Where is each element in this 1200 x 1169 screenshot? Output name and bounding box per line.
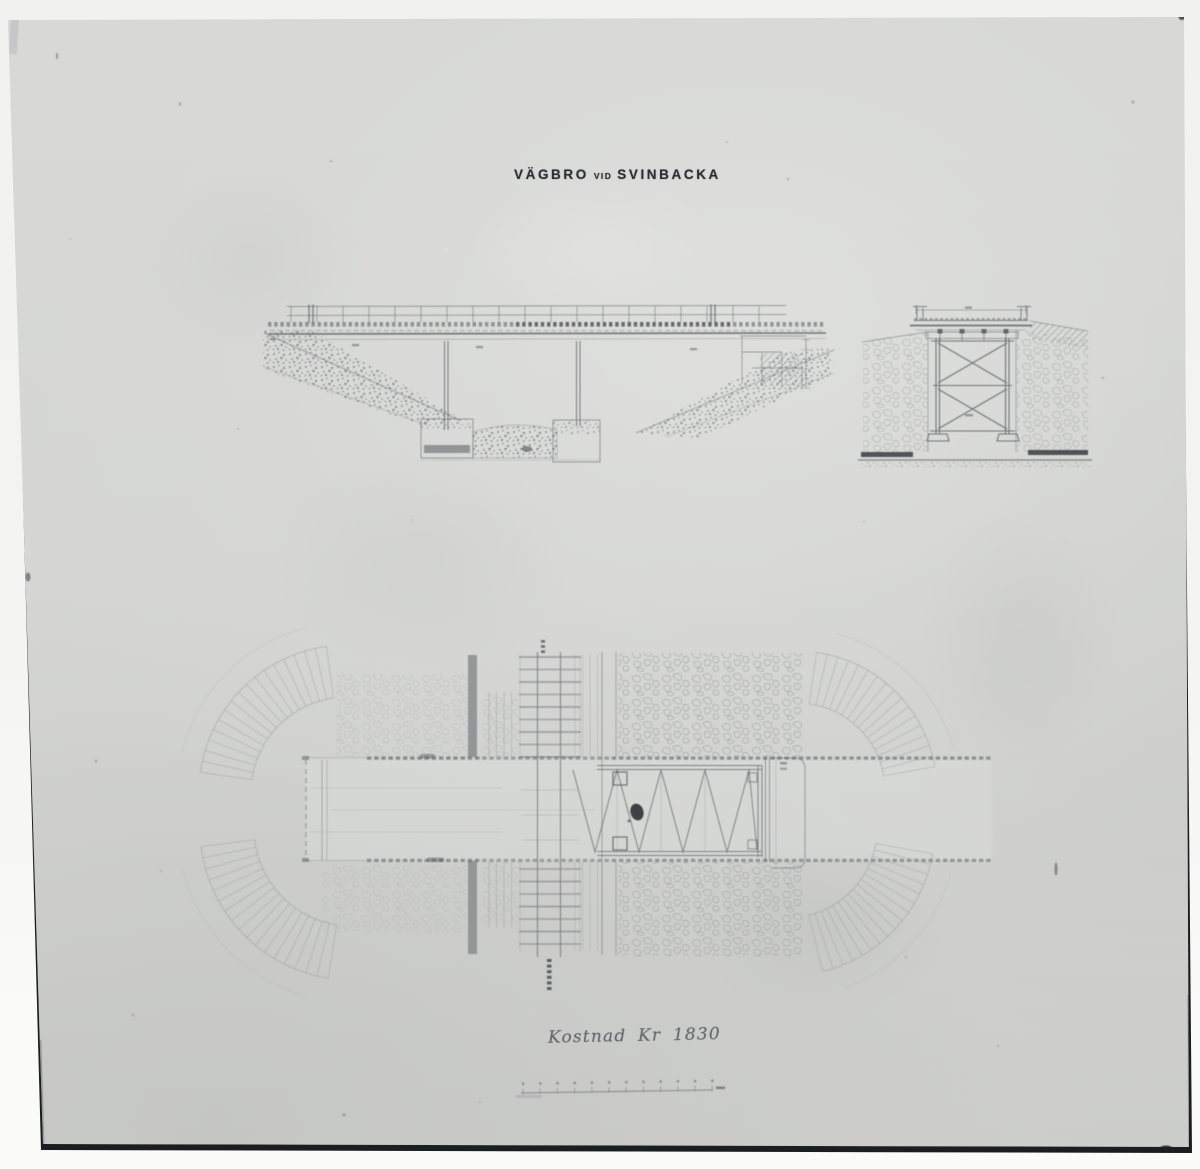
right-embankment: [638, 348, 833, 438]
handwritten-inscription: Kostnad Kr 1830: [548, 1024, 721, 1048]
paper-specks: [9, 14, 1190, 1151]
photo-scan: VÄGBROVIDSVINBACKA Kostnad Kr 1830: [0, 0, 1200, 1169]
drawing-title: VÄGBROVIDSVINBACKA: [514, 167, 721, 182]
title-word: SVINBACKA: [617, 167, 721, 182]
elevation-view: [263, 305, 834, 463]
abutment-wall-edge: [468, 655, 477, 757]
plan-view: [182, 628, 992, 996]
photo-print: VÄGBROVIDSVINBACKA Kostnad Kr 1830: [0, 0, 1200, 1169]
cross-section-view: [858, 305, 1092, 467]
scale-bar: [516, 1080, 725, 1098]
masonry-left: [863, 332, 928, 452]
title-word: VÄGBRO: [514, 167, 589, 182]
left-embankment: [263, 331, 462, 426]
abutment-wall-edge: [468, 861, 477, 954]
title-word-small: VID: [594, 171, 612, 181]
masonry-right: [1016, 330, 1088, 452]
trestle-pier: [927, 338, 1019, 441]
